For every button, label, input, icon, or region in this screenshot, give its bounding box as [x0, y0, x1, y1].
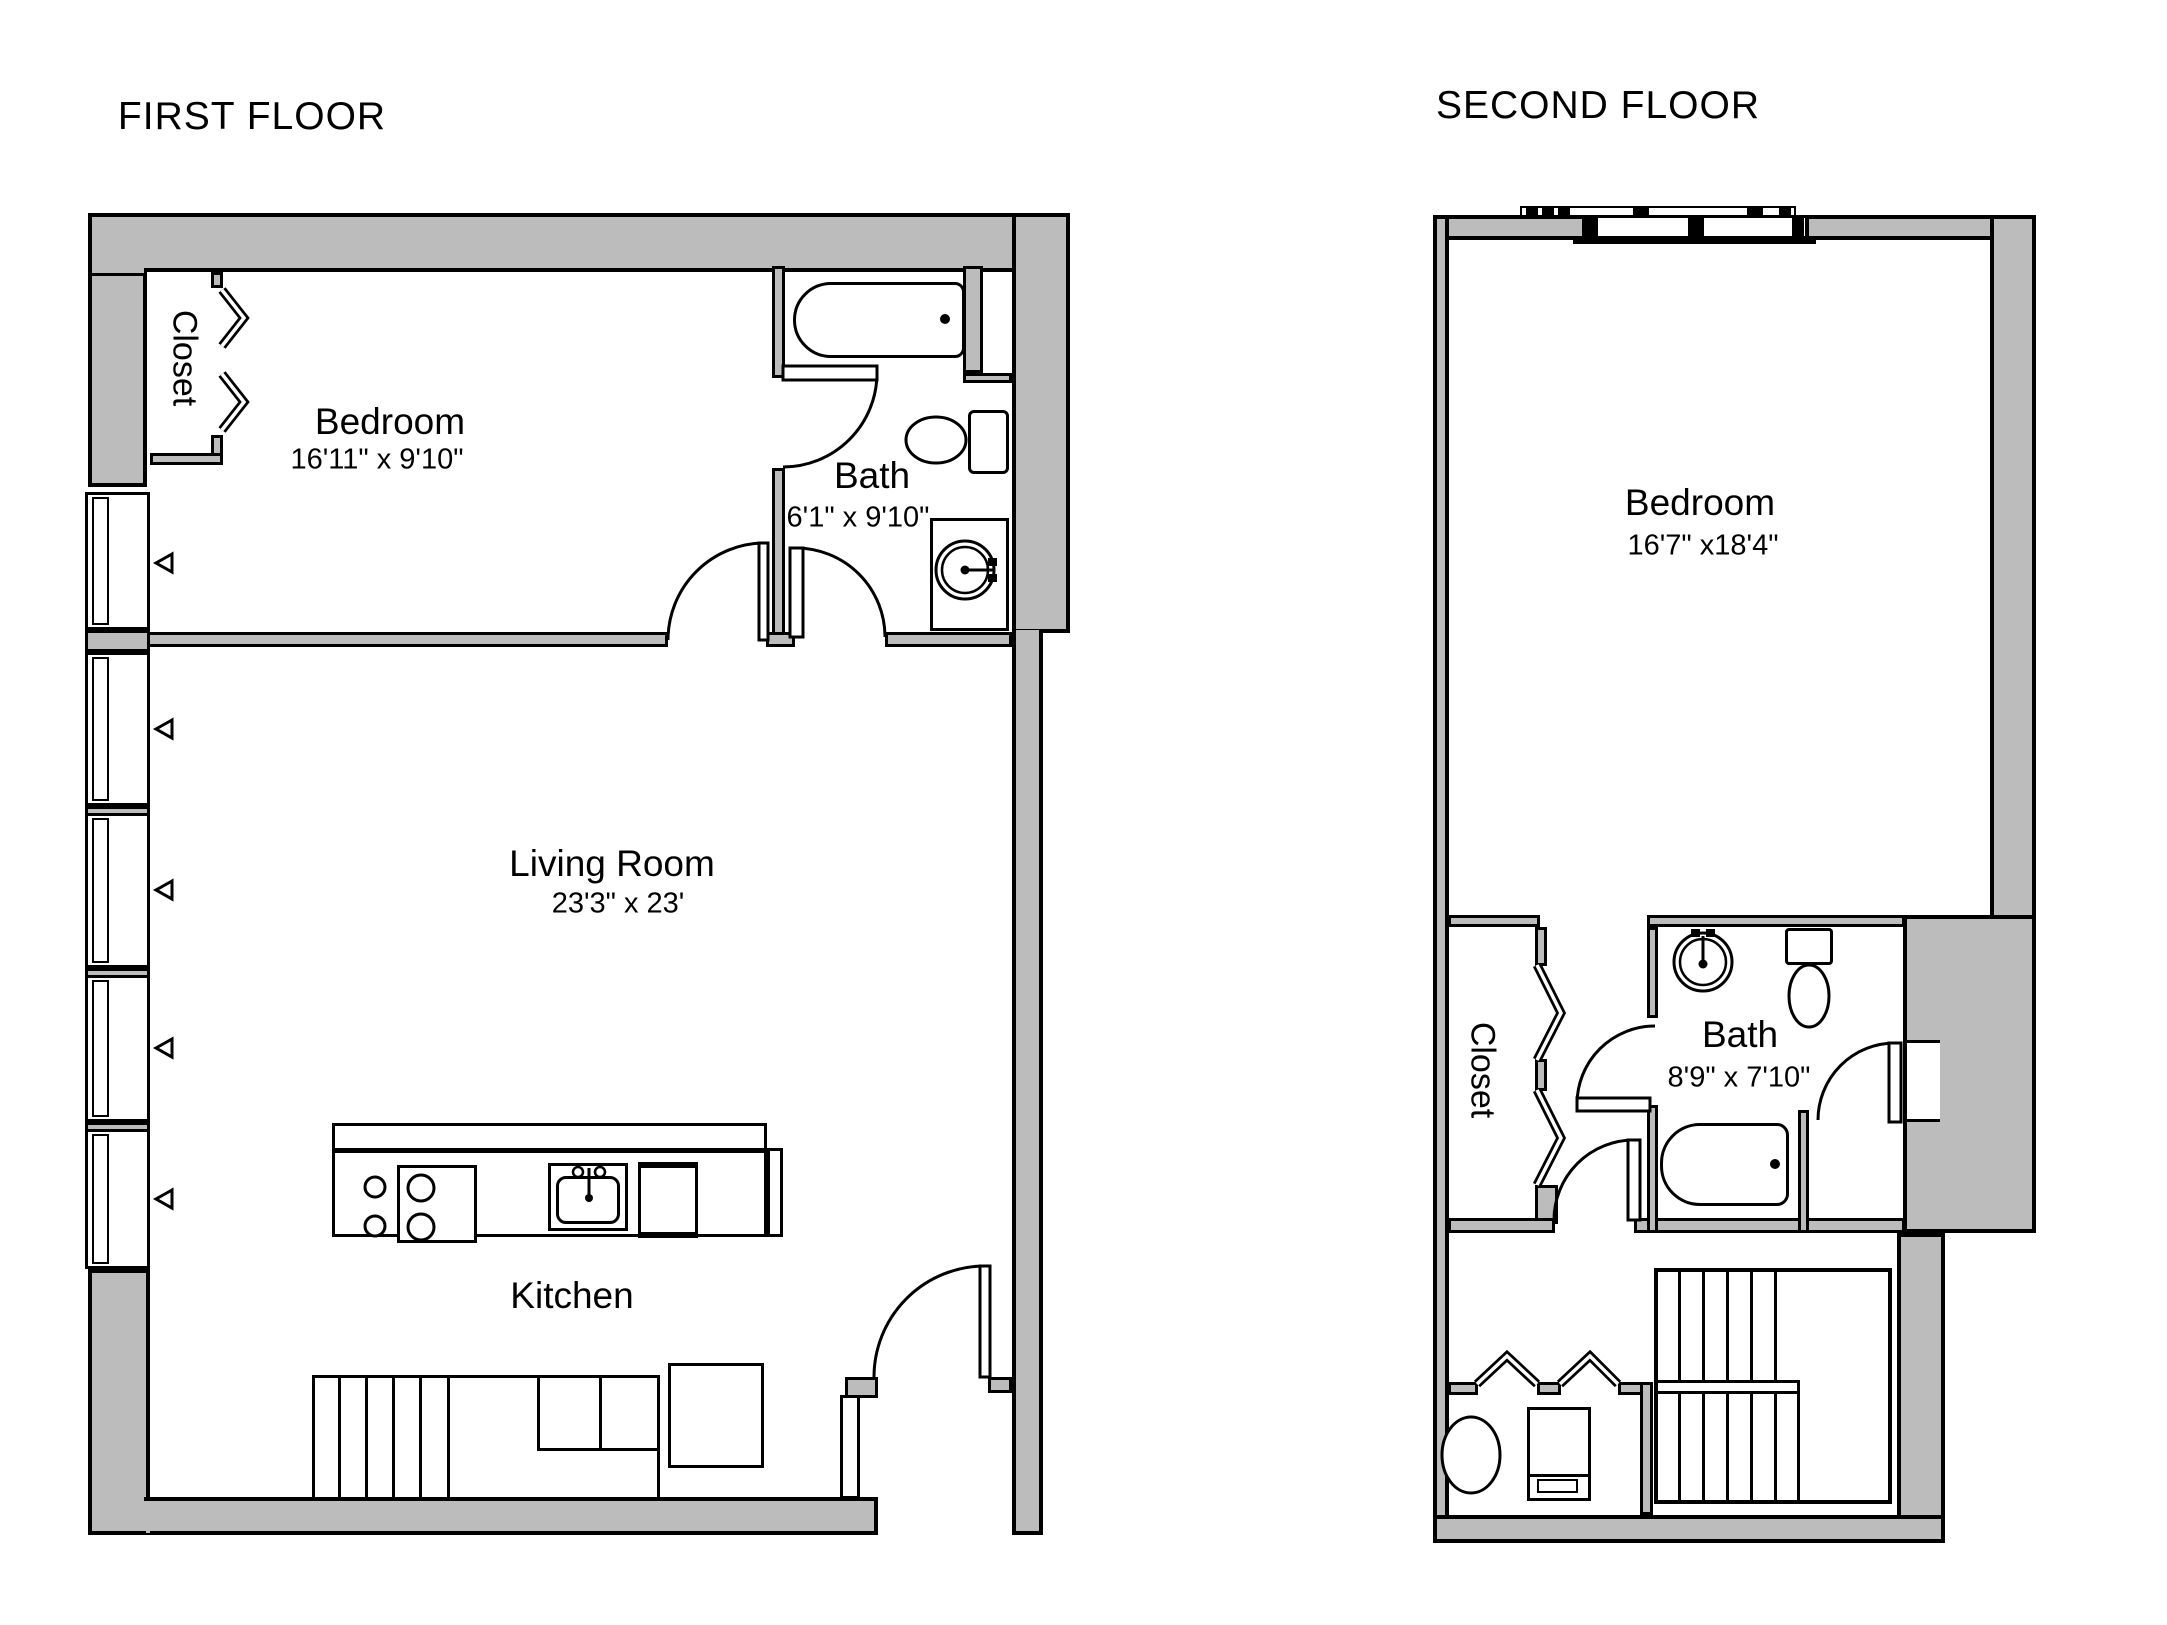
- wall-closet-stub-top: [1535, 927, 1547, 966]
- rail-tick: [1779, 208, 1791, 215]
- window-arrow-icon: [156, 720, 172, 738]
- wall-left-lower: [88, 1269, 150, 1535]
- wall-bedroom-south-left: [1448, 915, 1540, 927]
- stair-tread-line: [1702, 1272, 1705, 1380]
- window-arrow-icon: [156, 1190, 172, 1208]
- appliance-line: [1530, 1474, 1588, 1477]
- sink-basin-inner-icon: [1680, 939, 1726, 985]
- wall-tub-pillar: [963, 266, 983, 373]
- wall-laundry-stub-left: [1448, 1382, 1478, 1395]
- counter-end-panel: [767, 1148, 783, 1237]
- kitchen-label: Kitchen: [510, 1275, 633, 1317]
- stair-tread-line: [1726, 1272, 1729, 1380]
- bath-label: Bath: [834, 455, 910, 497]
- drawer-divider-line: [338, 1378, 341, 1497]
- window-glazing: [92, 1134, 109, 1264]
- wall-closet-stub-mid: [1535, 1059, 1547, 1091]
- wall-bath-foot: [766, 632, 795, 647]
- bathtub-icon: [793, 282, 965, 358]
- bedroom-door-leaf: [759, 543, 768, 640]
- toilet-bowl-icon: [906, 417, 966, 463]
- bath-hall-door-arc: [796, 548, 885, 637]
- bifold-door-icon: [222, 290, 244, 346]
- bifold-door-icon: [222, 374, 244, 430]
- stair-tread-line: [1774, 1272, 1777, 1380]
- slider-post: [1688, 216, 1704, 238]
- wall-right-lower: [1012, 633, 1043, 1535]
- bathtub-icon: [1660, 1123, 1789, 1206]
- sink-faucet-handle: [1706, 929, 1715, 937]
- closet-label: Closet: [165, 310, 204, 406]
- wall-hall-south-right: [1634, 1218, 1905, 1233]
- rail-tick: [1526, 208, 1538, 215]
- slider-post: [1792, 217, 1804, 237]
- wall-bath-left-lower: [772, 468, 785, 647]
- rail-tick: [1542, 208, 1554, 215]
- wall-bedroom-south-right: [1647, 915, 1905, 927]
- entry-door-arc: [874, 1266, 985, 1377]
- first-floor-title: FIRST FLOOR: [118, 95, 386, 139]
- bath-bedroom-door-arc: [783, 373, 877, 467]
- stair-tread-line: [1678, 1394, 1681, 1500]
- wall-hall-south-left: [1448, 1218, 1555, 1233]
- window-glazing: [92, 657, 109, 801]
- drawer-divider-line: [392, 1378, 395, 1497]
- wall-left-upper: [88, 272, 147, 487]
- stair-landing-line: [1658, 1380, 1798, 1383]
- window-arrow-icon: [156, 554, 172, 572]
- wall-tub-right: [1798, 1110, 1809, 1233]
- hall-stairs-door-leaf: [1628, 1140, 1640, 1220]
- rail-tick: [1747, 208, 1763, 215]
- bifold-door-icon: [1537, 965, 1561, 1060]
- wall-seam-patch: [1016, 630, 1039, 640]
- bifold-door-icon: [222, 374, 244, 430]
- window-glazing: [92, 818, 109, 963]
- toilet-bowl-icon: [1789, 965, 1829, 1027]
- living-room-dims: 23'3" x 23': [552, 888, 685, 921]
- wall-right-upper: [1012, 213, 1070, 633]
- window-mullion: [85, 630, 150, 652]
- rail-tick: [1633, 208, 1649, 215]
- stove-icon: [397, 1165, 477, 1243]
- wall-seam-patch: [92, 1497, 144, 1501]
- wall-top-left: [1433, 215, 1586, 240]
- bifold-door-icon: [1537, 1090, 1561, 1185]
- drawer-divider-line: [365, 1378, 368, 1497]
- wall-bottom: [1433, 1515, 1945, 1543]
- wall-bath-left-upper: [1647, 927, 1658, 1018]
- window-arrow-icon: [156, 881, 172, 899]
- bath-bedroom-door-leaf: [783, 366, 877, 380]
- wall-closet-bottom: [150, 453, 223, 465]
- drawer-divider-line: [447, 1378, 450, 1497]
- wall-right-upper: [1990, 215, 2036, 925]
- bath-right-door-arc: [1818, 1043, 1895, 1120]
- living-room-label: Living Room: [509, 843, 715, 885]
- wall-bedroom-living-divider: [147, 632, 668, 647]
- appliance-door: [1537, 1479, 1578, 1493]
- wall-right-lower: [1897, 1233, 1945, 1543]
- laundry-tub-icon: [1442, 1417, 1500, 1493]
- wall-bath-south: [885, 632, 1012, 647]
- bedroom-label: Bedroom: [1625, 482, 1775, 524]
- sink-basin-outer-icon: [1674, 933, 1732, 991]
- window-mullion: [85, 1122, 150, 1132]
- slider-post: [1586, 217, 1598, 237]
- second-floor-title: SECOND FLOOR: [1436, 84, 1760, 128]
- window-mullion: [85, 806, 150, 816]
- bath-label: Bath: [1702, 1014, 1778, 1056]
- rail-tick: [1558, 208, 1570, 215]
- bifold-door-icon: [1477, 1356, 1537, 1384]
- window-glazing: [92, 497, 109, 625]
- wall-laundry-stub-mid: [1537, 1382, 1561, 1395]
- bath-hall-door-leaf: [790, 548, 803, 637]
- refrigerator-icon: [668, 1363, 764, 1468]
- wall-chase-cap: [963, 373, 1012, 383]
- staircase: [1654, 1268, 1892, 1504]
- stair-tread-line: [1750, 1272, 1753, 1380]
- stair-tread-line: [1726, 1394, 1729, 1500]
- window-mullion: [85, 968, 150, 978]
- stair-tread-line: [1702, 1394, 1705, 1500]
- bath-door-leaf: [1577, 1098, 1650, 1111]
- wall-bath-left-upper: [772, 266, 785, 378]
- bifold-door-icon: [1560, 1356, 1618, 1384]
- toilet-tank-icon: [968, 410, 1009, 474]
- wall-seam-patch: [1016, 268, 1066, 273]
- bath-right-door-recess: [1907, 1040, 1940, 1122]
- hall-stairs-door-arc: [1554, 1140, 1634, 1220]
- bifold-door-icon: [1537, 1090, 1561, 1185]
- bedroom-dims: 16'7" x18'4": [1628, 530, 1779, 563]
- entry-door-leaf: [980, 1266, 990, 1377]
- slider-sill-line: [1573, 239, 1816, 244]
- kitchen-sink-basin: [556, 1176, 620, 1224]
- floorplan-canvas: FIRST FLOOR: [0, 0, 2167, 1625]
- wall-seam-patch: [92, 268, 144, 273]
- wall-laundry-right: [1640, 1382, 1653, 1515]
- bifold-door-icon: [222, 290, 244, 346]
- bifold-door-icon: [1537, 965, 1561, 1060]
- entry-sidelight: [840, 1395, 860, 1499]
- bath-right-door-leaf: [1889, 1043, 1901, 1122]
- bifold-door-icon: [1477, 1356, 1537, 1384]
- bath-dims: 8'9" x 7'10": [1668, 1062, 1811, 1095]
- cabinet-divider-line: [599, 1378, 602, 1448]
- wall-top: [88, 213, 1070, 272]
- drawer-divider-line: [419, 1378, 422, 1497]
- stair-separator-line: [1797, 1380, 1800, 1503]
- wall-bath-left-lower: [1647, 1105, 1658, 1233]
- wall-closet-stub-top: [211, 272, 223, 288]
- window-glazing: [92, 980, 109, 1117]
- stair-tread-line: [1774, 1394, 1777, 1500]
- sink-faucet-handle: [1691, 929, 1700, 937]
- closet-label: Closet: [1463, 1022, 1502, 1118]
- sink-drain-icon: [1699, 960, 1708, 969]
- dishwasher-icon: [638, 1162, 698, 1238]
- wall-entry-stub: [988, 1377, 1012, 1393]
- toilet-tank-icon: [1785, 928, 1833, 965]
- sink-vanity-icon: [930, 518, 1009, 631]
- bedroom-dims: 16'11" x 9'10": [290, 444, 463, 477]
- stair-tread-line: [1678, 1272, 1681, 1380]
- wall-seam-patch: [146, 1501, 150, 1533]
- bath-dims: 6'1" x 9'10": [787, 502, 930, 535]
- bedroom-label: Bedroom: [315, 401, 465, 443]
- window-arrow-icon: [156, 1039, 172, 1057]
- stair-tread-line: [1750, 1394, 1753, 1500]
- bedroom-door-arc: [668, 543, 765, 640]
- wall-left: [1433, 215, 1449, 1543]
- wall-bottom: [88, 1497, 878, 1535]
- kitchen-counter-top: [332, 1123, 767, 1151]
- bath-door-arc: [1577, 1026, 1655, 1104]
- bifold-door-icon: [1560, 1356, 1618, 1384]
